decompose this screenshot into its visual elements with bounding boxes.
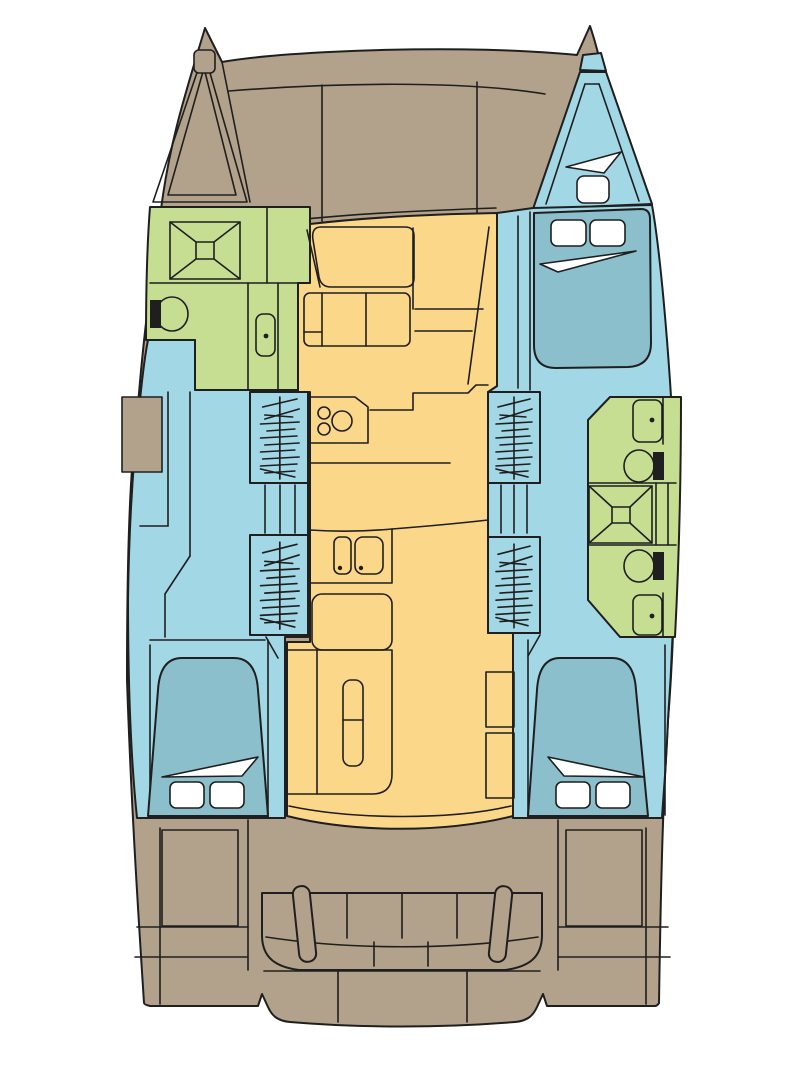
pillow [170, 782, 204, 808]
port-anchor-locker [194, 50, 215, 73]
starboard-aft-berth [528, 658, 648, 816]
pillow [590, 220, 625, 246]
port-aft-berth [148, 658, 268, 816]
pillow [556, 782, 590, 808]
saloon-galley [287, 213, 514, 829]
pillow [596, 782, 630, 808]
starboard-head-floor [588, 397, 681, 637]
catamaran-floorplan [0, 0, 805, 1080]
starboard-bow-tip-locker [580, 53, 606, 71]
pillow [210, 782, 244, 808]
cockpit-bench [262, 885, 542, 970]
starboard-bow-hatch [577, 176, 609, 203]
pillow [551, 220, 586, 246]
port-deck-step-block [122, 397, 162, 472]
floorplan-page [0, 0, 805, 1080]
port-aft-mattress [148, 658, 268, 816]
starboard-forward-berth [534, 209, 651, 368]
starboard-head [588, 397, 681, 637]
